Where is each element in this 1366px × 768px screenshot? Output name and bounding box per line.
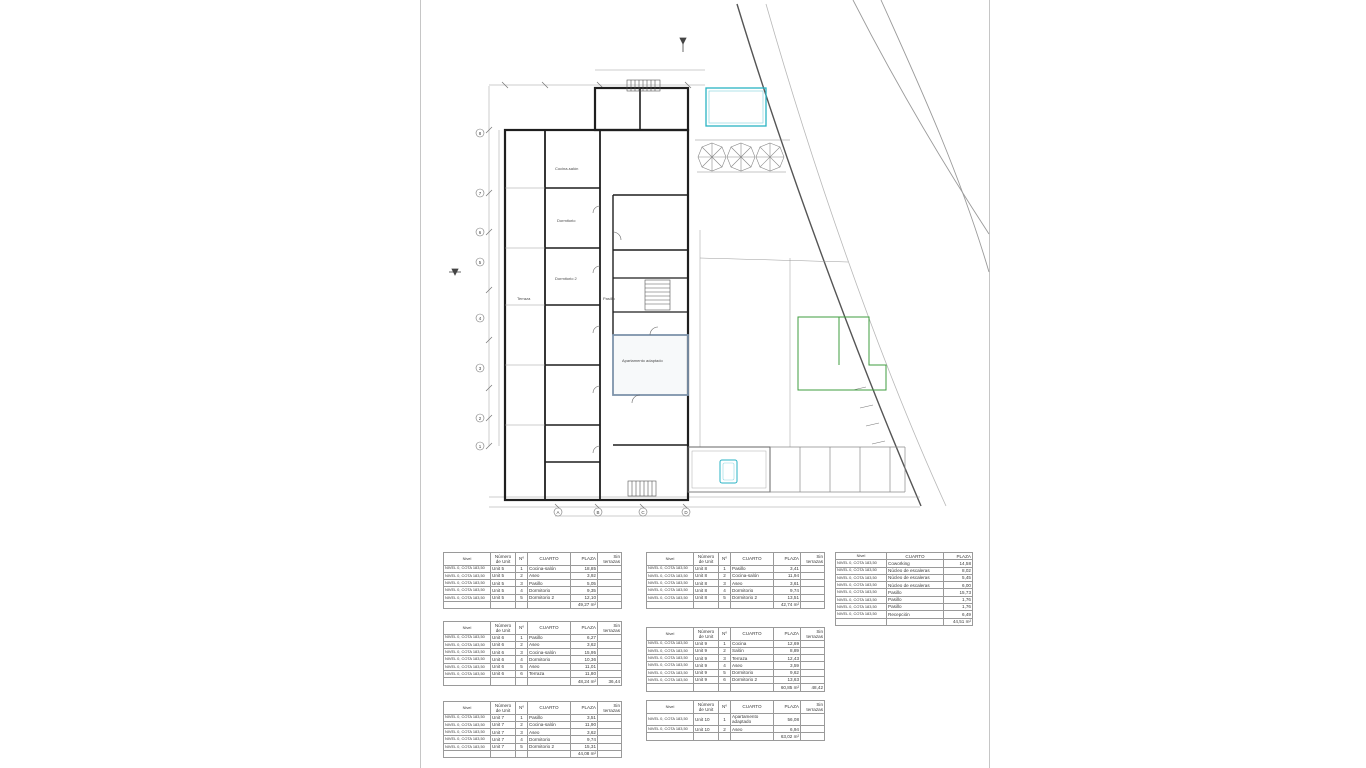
table-cell (598, 580, 622, 587)
table-cell: Unit 9 (694, 669, 719, 676)
table-cell (598, 670, 622, 677)
table-cell (647, 733, 694, 740)
table-cell: NIVEL 0, COTA 183,50 (444, 714, 491, 721)
table-cell: 15,73 (944, 589, 973, 596)
table-cell: NIVEL 0, COTA 183,50 (444, 663, 491, 670)
table-row: NIVEL 0, COTA 183,50Unit 71Pasillo3,51 (444, 714, 622, 721)
table-row: NIVEL 0, COTA 183,50Unit 65Aseo11,01 (444, 663, 622, 670)
table-row: NIVEL 0, COTA 183,50Unit 64Dormitorio10,… (444, 656, 622, 663)
area-table-unit10: NivelNúmero de UnitNºCUARTOPLAZASin terr… (646, 700, 825, 741)
column-header: Nivel (444, 702, 491, 715)
table-cell: Unit 6 (491, 656, 516, 663)
column-header: Número de Unit (491, 622, 516, 635)
table-cell (598, 594, 622, 601)
table-cell: Pasillo (887, 596, 944, 603)
table-row: NIVEL 0, COTA 183,50Unit 82Cocina-salón1… (647, 572, 825, 579)
table-row: NIVEL 0, COTA 183,50Unit 83Aseo3,61 (647, 580, 825, 587)
table-cell: 49,27 m² (571, 601, 598, 608)
table-cell (694, 733, 719, 740)
table-cell: 42,74 m² (774, 601, 801, 608)
table-cell: Cocina-salón (528, 565, 571, 572)
table-cell (801, 640, 825, 647)
column-header: Sin terrazas (801, 553, 825, 566)
table-cell: 3 (719, 580, 731, 587)
svg-text:B: B (596, 510, 599, 515)
dimension-lines (486, 70, 920, 516)
table-cell (598, 736, 622, 743)
table-cell: NIVEL 0, COTA 183,50 (444, 736, 491, 743)
table-cell: 6,00 (944, 582, 973, 589)
table-cell: 1 (516, 714, 528, 721)
column-header: Sin terrazas (598, 622, 622, 635)
column-header: Sin terrazas (801, 701, 825, 714)
table-row: NIVEL 0, COTA 183,50Unit 92Salón8,89 (647, 647, 825, 654)
column-header: PLAZA (774, 553, 801, 566)
table-cell: Pasillo (887, 603, 944, 610)
table-cell: 2 (719, 726, 731, 733)
table-cell: Aseo (528, 729, 571, 736)
column-header: PLAZA (571, 553, 598, 566)
area-table-common: NivelCUARTOPLAZANIVEL 0, COTA 183,50Cowo… (835, 552, 973, 626)
table-cell: 48,42 (801, 684, 825, 691)
table-cell: Dormitorio (731, 669, 774, 676)
table-cell (731, 601, 774, 608)
table-cell: Recepción (887, 611, 944, 618)
table-cell (598, 587, 622, 594)
table-cell (801, 580, 825, 587)
table-cell: NIVEL 0, COTA 183,50 (444, 670, 491, 677)
table-cell: Unit 9 (694, 655, 719, 662)
table-cell: 15,95 (571, 649, 598, 656)
table-row: NIVEL 0, COTA 183,50Pasillo1,76 (836, 603, 973, 610)
table-cell (598, 714, 622, 721)
table-cell: NIVEL 0, COTA 183,50 (647, 565, 694, 572)
column-header: Número de Unit (694, 628, 719, 641)
column-header: Nº (516, 702, 528, 715)
grid-bubble-number-labels: 8 7 6 5 4 3 2 1 (479, 131, 482, 449)
table-cell (836, 618, 887, 625)
table-row: NIVEL 0, COTA 183,50Unit 96Dormitorio 21… (647, 676, 825, 683)
site-boundary (737, 4, 946, 506)
table-cell: 14,58 (944, 560, 973, 567)
table-cell: Unit 8 (694, 565, 719, 572)
column-header: CUARTO (731, 553, 774, 566)
table-row: NIVEL 0, COTA 183,50Núcleo de escaleras6… (836, 582, 973, 589)
table-cell: Unit 5 (491, 565, 516, 572)
table-cell: Unit 8 (694, 580, 719, 587)
room-label: Pasillo (603, 296, 616, 301)
table-cell (647, 601, 694, 608)
room-label: Dormitorio (557, 218, 576, 223)
table-cell: 6,27 (571, 634, 598, 641)
table-cell: 6 (719, 676, 731, 683)
table-row: NIVEL 0, COTA 183,50Unit 101Apartamento … (647, 713, 825, 726)
table-row: 44,51 m² (836, 618, 973, 625)
table-row: 42,74 m² (647, 601, 825, 608)
table-cell: Salón (731, 647, 774, 654)
table-cell (491, 678, 516, 685)
table-cell: 2 (516, 572, 528, 579)
table-cell (516, 678, 528, 685)
table-cell: NIVEL 0, COTA 183,50 (647, 640, 694, 647)
table-row: 60,85 m²48,42 (647, 684, 825, 691)
table-cell: Cocina-salón (731, 572, 774, 579)
table-cell (598, 649, 622, 656)
table-cell: 1 (719, 565, 731, 572)
table-row: NIVEL 0, COTA 183,50Unit 54Dormitorio9,3… (444, 587, 622, 594)
table-header-row: NivelNúmero de UnitNºCUARTOPLAZASin terr… (647, 553, 825, 566)
table-cell (801, 733, 825, 740)
table-cell: 5,05 (571, 580, 598, 587)
table-cell: Unit 6 (491, 649, 516, 656)
table-cell: 6 (516, 670, 528, 677)
table-header-row: NivelNúmero de UnitNºCUARTOPLAZASin terr… (444, 702, 622, 715)
table-row: NIVEL 0, COTA 183,50Unit 63Cocina-salón1… (444, 649, 622, 656)
table-cell: 4 (516, 656, 528, 663)
grid-bubbles-numbers (476, 129, 484, 450)
road-lines (853, 0, 989, 272)
table-cell: 60,85 m² (774, 684, 801, 691)
table-cell: 5 (516, 663, 528, 670)
table-cell: 18,85 (571, 565, 598, 572)
table-header-row: NivelNúmero de UnitNºCUARTOPLAZASin terr… (647, 701, 825, 714)
table-cell: Terraza (731, 655, 774, 662)
table-row: NIVEL 0, COTA 183,50Unit 102Aseo6,94 (647, 726, 825, 733)
table-cell: 5 (719, 669, 731, 676)
column-header: PLAZA (774, 628, 801, 641)
table-cell (516, 750, 528, 757)
table-cell (694, 684, 719, 691)
table-cell: 4 (516, 587, 528, 594)
table-row: NIVEL 0, COTA 183,50Pasillo15,73 (836, 589, 973, 596)
table-cell: 2 (516, 641, 528, 648)
table-cell: Unit 7 (491, 714, 516, 721)
column-header: Número de Unit (491, 702, 516, 715)
table-cell (801, 676, 825, 683)
table-cell: Aseo (731, 662, 774, 669)
table-cell (528, 750, 571, 757)
table-cell (801, 572, 825, 579)
column-header: Nº (719, 553, 731, 566)
parking-spaces (688, 447, 905, 492)
data-table: NivelNúmero de UnitNºCUARTOPLAZASin terr… (646, 627, 825, 692)
table-cell (516, 601, 528, 608)
table-row: NIVEL 0, COTA 183,50Unit 74Dormitorio9,7… (444, 736, 622, 743)
table-cell: 4 (719, 587, 731, 594)
table-cell: 3,41 (774, 565, 801, 572)
table-cell: Unit 9 (694, 647, 719, 654)
area-table-unit9: NivelNúmero de UnitNºCUARTOPLAZASin terr… (646, 627, 825, 692)
table-cell (801, 647, 825, 654)
room-label: Apartamento adaptado (622, 358, 663, 363)
table-cell: NIVEL 0, COTA 183,50 (444, 721, 491, 728)
table-cell: Terraza (528, 670, 571, 677)
table-cell: Apartamento adaptado (731, 713, 774, 726)
table-row: NIVEL 0, COTA 183,50Unit 91Cocina12,69 (647, 640, 825, 647)
table-cell: NIVEL 0, COTA 183,50 (647, 676, 694, 683)
column-header: Nivel (444, 622, 491, 635)
table-cell: NIVEL 0, COTA 183,50 (647, 713, 694, 726)
table-cell (887, 618, 944, 625)
table-cell: NIVEL 0, COTA 183,50 (836, 603, 887, 610)
table-cell: Unit 7 (491, 736, 516, 743)
table-cell: 12,10 (571, 594, 598, 601)
table-cell: Unit 9 (694, 676, 719, 683)
column-header: Número de Unit (491, 553, 516, 566)
table-cell (801, 669, 825, 676)
table-cell: NIVEL 0, COTA 183,50 (836, 611, 887, 618)
table-cell: 6,94 (774, 726, 801, 733)
table-row: 63,02 m² (647, 733, 825, 740)
table-cell: Aseo (528, 572, 571, 579)
table-cell: Unit 5 (491, 587, 516, 594)
table-row: 49,27 m² (444, 601, 622, 608)
area-table-unit5: NivelNúmero de UnitNºCUARTOPLAZASin terr… (443, 552, 622, 609)
table-row: NIVEL 0, COTA 183,50Unit 53Pasillo5,05 (444, 580, 622, 587)
table-cell: NIVEL 0, COTA 183,50 (836, 596, 887, 603)
column-header: CUARTO (528, 622, 571, 635)
table-cell: Unit 6 (491, 641, 516, 648)
table-cell: 12,43 (774, 655, 801, 662)
table-cell: Unit 5 (491, 580, 516, 587)
table-cell: 3 (516, 580, 528, 587)
table-row: 44,08 m² (444, 750, 622, 757)
table-row: NIVEL 0, COTA 183,50Unit 75Dormitorio 21… (444, 743, 622, 750)
table-cell: 1,76 (944, 596, 973, 603)
area-table-unit6: NivelNúmero de UnitNºCUARTOPLAZASin terr… (443, 621, 622, 686)
table-row: NIVEL 0, COTA 183,50Unit 61Pasillo6,27 (444, 634, 622, 641)
table-cell: Coworking (887, 560, 944, 567)
table-cell: NIVEL 0, COTA 183,50 (444, 565, 491, 572)
table-cell: Dormitorio (528, 656, 571, 663)
table-cell: 12,69 (774, 640, 801, 647)
table-cell: Unit 9 (694, 640, 719, 647)
table-cell: NIVEL 0, COTA 183,50 (647, 587, 694, 594)
column-header: Nº (516, 622, 528, 635)
table-cell: Unit 6 (491, 634, 516, 641)
table-cell: Pasillo (528, 714, 571, 721)
table-cell: NIVEL 0, COTA 183,50 (444, 594, 491, 601)
table-cell: 9,74 (774, 587, 801, 594)
table-cell: 1 (516, 565, 528, 572)
table-cell (731, 733, 774, 740)
table-cell (801, 601, 825, 608)
column-header: Número de Unit (694, 553, 719, 566)
table-cell: Unit 8 (694, 594, 719, 601)
table-cell: Unit 5 (491, 572, 516, 579)
data-table: NivelNúmero de UnitNºCUARTOPLAZASin terr… (443, 701, 622, 758)
table-cell (491, 750, 516, 757)
table-cell: 48,24 m² (571, 678, 598, 685)
column-header: Nº (719, 701, 731, 714)
room-label: Dormitorio 2 (555, 276, 578, 281)
table-cell (598, 565, 622, 572)
data-table: NivelNúmero de UnitNºCUARTOPLAZASin terr… (443, 621, 622, 686)
table-cell: Unit 10 (694, 726, 719, 733)
table-cell: Dormitorio (731, 587, 774, 594)
column-header: CUARTO (528, 702, 571, 715)
table-row: NIVEL 0, COTA 183,50Unit 52Aseo3,92 (444, 572, 622, 579)
table-cell: Dormitorio 2 (528, 594, 571, 601)
area-table-unit7: NivelNúmero de UnitNºCUARTOPLAZASin terr… (443, 701, 622, 758)
table-cell: Aseo (731, 580, 774, 587)
table-cell: NIVEL 0, COTA 183,50 (444, 587, 491, 594)
table-cell (598, 641, 622, 648)
table-cell: NIVEL 0, COTA 183,50 (647, 572, 694, 579)
table-cell (528, 601, 571, 608)
table-cell (598, 572, 622, 579)
table-cell: 9,74 (571, 736, 598, 743)
column-header: Sin terrazas (598, 702, 622, 715)
table-cell (598, 601, 622, 608)
table-cell (444, 750, 491, 757)
data-table: NivelNúmero de UnitNºCUARTOPLAZASin terr… (646, 700, 825, 741)
table-header-row: NivelNúmero de UnitNºCUARTOPLAZASin terr… (444, 553, 622, 566)
column-header: Nivel (444, 553, 491, 566)
table-cell: Pasillo (887, 589, 944, 596)
table-cell: 11,01 (571, 663, 598, 670)
table-cell: 4 (719, 662, 731, 669)
table-cell: NIVEL 0, COTA 183,50 (647, 669, 694, 676)
table-cell: 3,51 (571, 714, 598, 721)
table-cell (528, 678, 571, 685)
terrace-partitions (505, 188, 545, 425)
table-cell: Unit 9 (694, 662, 719, 669)
table-row: NIVEL 0, COTA 183,50Unit 73Aseo3,62 (444, 729, 622, 736)
table-row: NIVEL 0, COTA 183,50Unit 51Cocina-salón1… (444, 565, 622, 572)
table-cell: 11,80 (571, 670, 598, 677)
table-cell (647, 684, 694, 691)
table-cell: 1 (719, 640, 731, 647)
data-table: NivelCUARTOPLAZANIVEL 0, COTA 183,50Cowo… (835, 552, 973, 626)
table-cell: 2 (516, 721, 528, 728)
table-cell (801, 655, 825, 662)
grid-bubbles-letters (554, 508, 690, 516)
table-cell: Núcleo de escaleras (887, 567, 944, 574)
table-cell (731, 684, 774, 691)
table-cell: 3 (719, 655, 731, 662)
table-cell: Cocina (731, 640, 774, 647)
table-cell: 3 (516, 649, 528, 656)
table-cell: 1,76 (944, 603, 973, 610)
table-cell: Unit 8 (694, 587, 719, 594)
section-marker-icon (449, 38, 686, 275)
table-cell: 3,92 (571, 572, 598, 579)
table-cell: NIVEL 0, COTA 183,50 (647, 662, 694, 669)
table-cell: NIVEL 0, COTA 183,50 (444, 649, 491, 656)
table-cell: Núcleo de escaleras (887, 582, 944, 589)
table-cell (719, 601, 731, 608)
table-cell: 10,36 (571, 656, 598, 663)
table-cell: NIVEL 0, COTA 183,50 (444, 729, 491, 736)
apartment-highlight (613, 335, 688, 395)
room-label: Cocina-salón (555, 166, 578, 171)
table-cell: NIVEL 0, COTA 183,50 (836, 560, 887, 567)
utility-block (688, 447, 770, 492)
table-cell: Unit 7 (491, 729, 516, 736)
column-header: Sin terrazas (598, 553, 622, 566)
table-cell: Unit 7 (491, 743, 516, 750)
table-cell: 5 (516, 594, 528, 601)
table-cell: 11,94 (774, 572, 801, 579)
table-cell: 3 (516, 729, 528, 736)
data-table: NivelNúmero de UnitNºCUARTOPLAZASin terr… (443, 552, 622, 609)
table-cell: 3,61 (774, 580, 801, 587)
column-header: PLAZA (774, 701, 801, 714)
table-header-row: NivelNúmero de UnitNºCUARTOPLAZASin terr… (444, 622, 622, 635)
table-cell: Aseo (528, 641, 571, 648)
column-header: CUARTO (731, 701, 774, 714)
column-header: Número de Unit (694, 701, 719, 714)
table-cell: Dormitorio 2 (528, 743, 571, 750)
stairs-icon (627, 80, 670, 496)
table-cell: 9,35 (571, 587, 598, 594)
table-cell (491, 601, 516, 608)
column-header: CUARTO (731, 628, 774, 641)
column-header: PLAZA (944, 553, 973, 560)
table-cell: NIVEL 0, COTA 183,50 (647, 655, 694, 662)
table-cell: NIVEL 0, COTA 183,50 (444, 641, 491, 648)
pool (706, 88, 766, 126)
table-header-row: NivelNúmero de UnitNºCUARTOPLAZASin terr… (647, 628, 825, 641)
column-header: Nivel (836, 553, 887, 560)
table-cell: Dormitorio 2 (731, 676, 774, 683)
table-cell: 3,62 (571, 641, 598, 648)
table-cell: Cocina-salón (528, 721, 571, 728)
table-cell: Núcleo de escaleras (887, 574, 944, 581)
room-label: Terraza (517, 296, 531, 301)
table-cell (444, 601, 491, 608)
table-cell: 5,45 (944, 574, 973, 581)
table-cell: Unit 7 (491, 721, 516, 728)
table-row: NIVEL 0, COTA 183,50Coworking14,58 (836, 560, 973, 567)
table-cell: 6,49 (944, 611, 973, 618)
grid-bubble-letter-labels: A B C D (556, 510, 688, 515)
table-row: NIVEL 0, COTA 183,50Unit 55Dormitorio 21… (444, 594, 622, 601)
table-row: NIVEL 0, COTA 183,50Unit 72Cocina-salón1… (444, 721, 622, 728)
table-row: NIVEL 0, COTA 183,50Unit 95Dormitorio9,6… (647, 669, 825, 676)
table-cell (801, 662, 825, 669)
column-header: Nivel (647, 628, 694, 641)
table-cell: Unit 6 (491, 663, 516, 670)
table-cell (719, 684, 731, 691)
table-cell (801, 565, 825, 572)
table-cell: Dormitorio (528, 587, 571, 594)
table-header-row: NivelCUARTOPLAZA (836, 553, 973, 560)
table-cell: Unit 5 (491, 594, 516, 601)
table-cell: 15,31 (571, 743, 598, 750)
table-cell: 5 (516, 743, 528, 750)
column-header: Nivel (647, 553, 694, 566)
column-header: Nº (719, 628, 731, 641)
table-row: NIVEL 0, COTA 183,50Unit 66Terraza11,80 (444, 670, 622, 677)
table-cell: 4 (516, 736, 528, 743)
table-cell (598, 743, 622, 750)
data-table: NivelNúmero de UnitNºCUARTOPLAZASin terr… (646, 552, 825, 609)
column-header: Nº (516, 553, 528, 566)
table-cell: 44,51 m² (944, 618, 973, 625)
table-cell (598, 750, 622, 757)
table-cell: NIVEL 0, COTA 183,50 (647, 594, 694, 601)
table-cell: Unit 8 (694, 572, 719, 579)
table-cell: NIVEL 0, COTA 183,50 (647, 580, 694, 587)
table-cell: Aseo (731, 726, 774, 733)
table-cell: 13,63 (774, 676, 801, 683)
column-header: Sin terrazas (801, 628, 825, 641)
table-cell (801, 726, 825, 733)
table-cell: Aseo (528, 663, 571, 670)
column-header: PLAZA (571, 622, 598, 635)
